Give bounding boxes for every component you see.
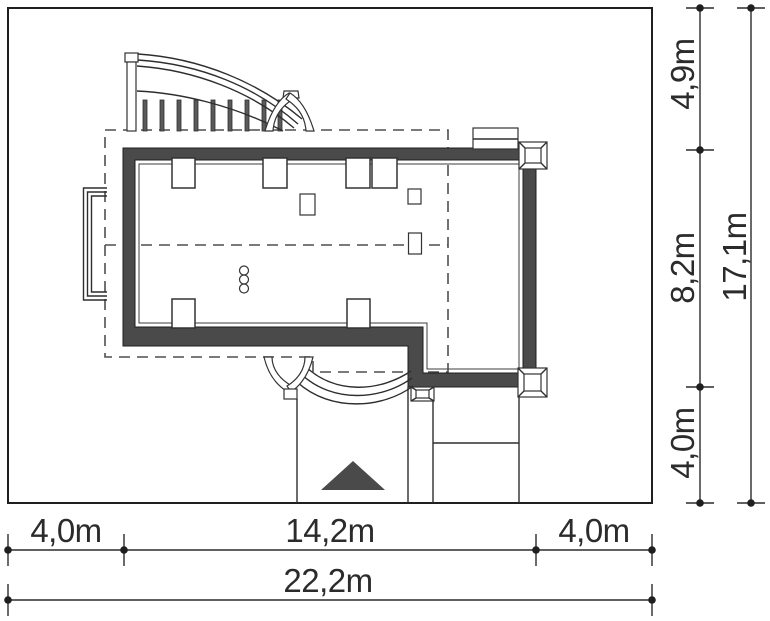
bay-line-mid [88,192,108,296]
dim-label-bottom-left: 4,0m [30,512,101,549]
pergola-post [143,100,147,131]
interior-fixtures [240,189,422,293]
pergola-post [177,100,181,131]
dimensions-bottom: 4,0m 14,2m 4,0m 22,2m [4,512,656,616]
pergola-post [194,100,198,131]
dim-dot [747,4,755,12]
entrance-arrow-icon [321,461,385,490]
chimney [346,158,370,188]
roof-window [300,194,315,215]
vent-circle [240,284,249,293]
dim-dot [648,596,656,604]
chimney [172,299,195,328]
dim-dot [696,146,704,154]
pergola-post [160,100,164,131]
chimney [372,158,397,188]
pergola-main-post [127,62,136,131]
dim-label-right-bottom: 4,0m [664,407,701,478]
dim-dot [696,383,704,391]
dim-label-bottom-right: 4,0m [558,512,629,549]
dim-label-right-top: 4,9m [664,38,701,109]
entrance-arch [264,357,413,404]
vent-circle [240,275,249,284]
arch-line [301,374,412,396]
roof-window-small [408,189,421,204]
chimney [172,158,195,188]
arch-cap [284,389,297,399]
dim-label-right-middle: 8,2m [664,232,701,303]
chimney [263,158,287,188]
pergola-post [228,100,232,131]
roof-chimney-top-right [473,128,518,149]
dim-label-right-total: 17,1m [716,212,753,301]
windowsill-bottom-right [518,368,547,397]
dim-dot [4,596,12,604]
pergola [125,53,314,131]
dim-label-bottom-total: 22,2m [283,562,372,599]
dimensions-right: 4,9m 8,2m 4,0m 17,1m [664,4,765,507]
pergola-post [211,100,215,131]
dim-label-bottom-middle: 14,2m [285,512,374,549]
sill-inner [524,374,541,391]
arch-line [305,366,411,387]
dim-dot [532,546,540,554]
arch-line [297,382,413,404]
windowsill-top-right [519,142,547,169]
sill-inner [416,390,429,398]
arch-leg [287,357,313,392]
dim-dot [696,499,704,507]
dim-dot [747,499,755,507]
dim-dot [696,4,704,12]
pergola-main-post-cap [125,53,138,62]
dim-dot [648,546,656,554]
chimney [347,299,370,328]
dim-dot [120,546,128,554]
site-plan-drawing: 4,0m 14,2m 4,0m 22,2m 4,9m 8,2m 4,0m 17,… [0,0,770,621]
vent-circle [240,266,249,275]
site-plan-page: 4,0m 14,2m 4,0m 22,2m 4,9m 8,2m 4,0m 17,… [0,0,770,621]
ridge-vent [409,233,422,254]
left-bay-window [84,188,108,300]
sill-inner [525,148,541,163]
dim-dot [4,546,12,554]
windowsill-entrance [411,387,434,401]
